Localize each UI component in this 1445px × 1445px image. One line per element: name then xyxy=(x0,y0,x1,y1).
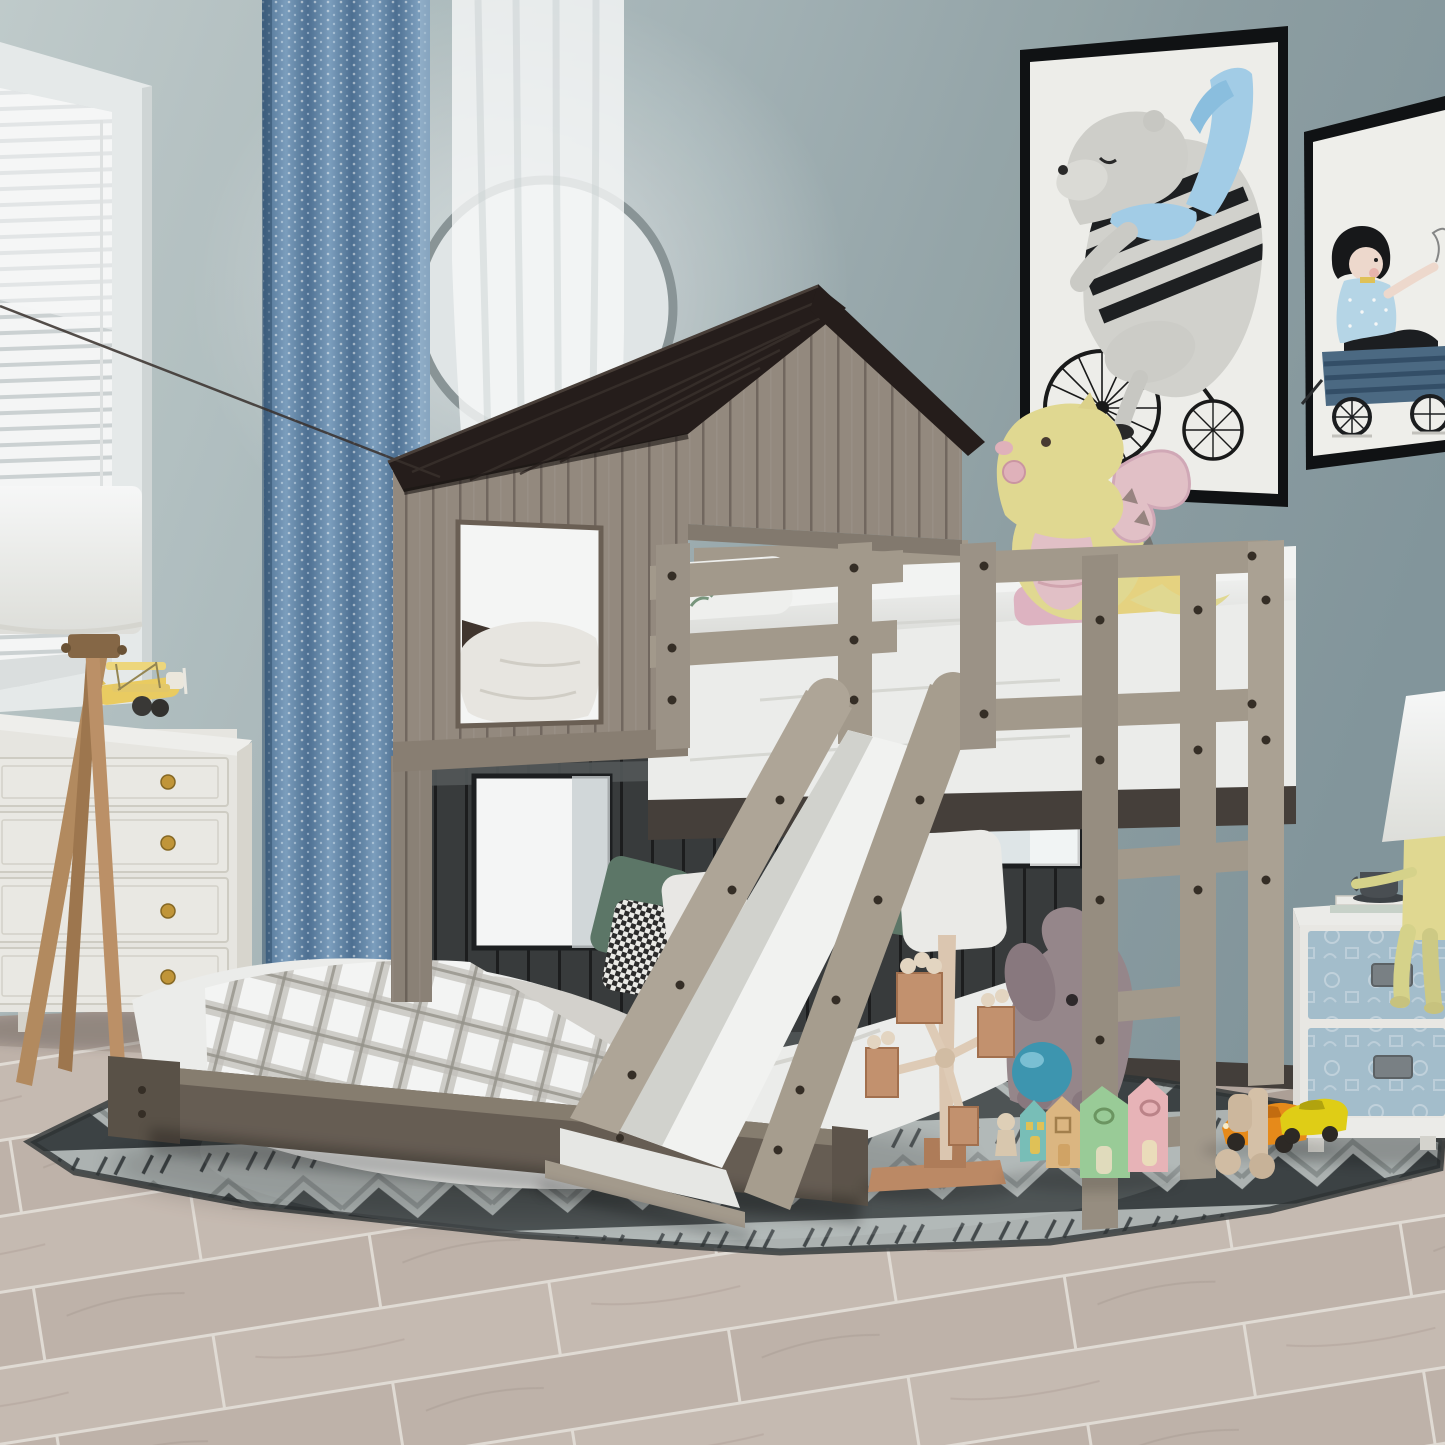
screenshot-root xyxy=(0,0,1445,1445)
vignette xyxy=(0,0,1445,1445)
